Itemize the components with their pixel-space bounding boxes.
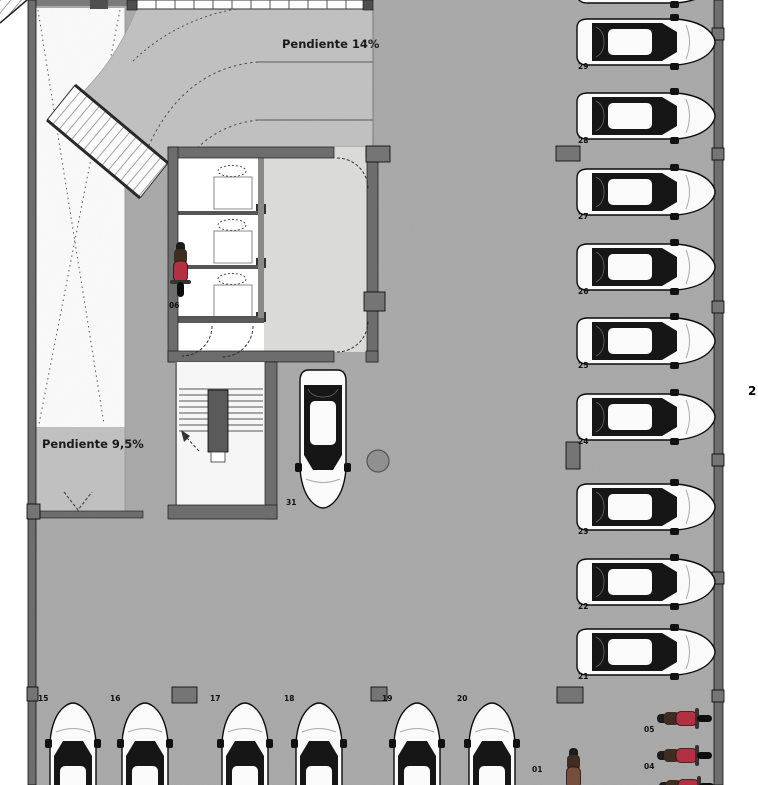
structural-column bbox=[557, 687, 583, 703]
parking-space-label: 18 bbox=[284, 694, 294, 703]
straight-ramp-label: Pendiente 9,5% bbox=[42, 437, 144, 451]
car bbox=[577, 389, 715, 445]
wall-left bbox=[28, 0, 36, 785]
parking-floor-plan: 2928272625242322211516171819203106050401… bbox=[0, 0, 758, 785]
structural-column bbox=[27, 504, 40, 519]
elevator-cab bbox=[214, 177, 252, 209]
cell-separator bbox=[178, 211, 264, 215]
parking-space-label: 16 bbox=[110, 694, 120, 703]
parking-space-label: 24 bbox=[578, 437, 588, 446]
elevator-front-wall bbox=[258, 158, 264, 320]
core-wall-bottom bbox=[168, 351, 334, 362]
car bbox=[577, 239, 715, 295]
parking-space-label: 29 bbox=[578, 62, 588, 71]
parking-space-label: 22 bbox=[578, 602, 588, 611]
structural-column bbox=[366, 146, 390, 162]
parking-space-label: 06 bbox=[169, 301, 179, 310]
parking-space-label: 31 bbox=[286, 498, 296, 507]
car bbox=[295, 370, 351, 508]
parking-space-label: 05 bbox=[644, 725, 654, 734]
elevator-cab bbox=[214, 231, 252, 263]
parking-space-label: 26 bbox=[578, 287, 588, 296]
elevator-cab bbox=[214, 285, 252, 317]
cell-separator bbox=[178, 265, 264, 269]
parking-space-label: 01 bbox=[532, 765, 542, 774]
structural-column bbox=[556, 146, 580, 161]
core-block bbox=[168, 147, 385, 362]
corner-hatch bbox=[0, 0, 27, 23]
stair-wall-right bbox=[265, 362, 277, 519]
curved-ramp-label: Pendiente 14% bbox=[282, 37, 380, 51]
structural-column bbox=[712, 148, 724, 160]
parking-space-label: 20 bbox=[457, 694, 467, 703]
stair-block bbox=[168, 362, 277, 519]
margin-note: 2 bbox=[748, 384, 756, 398]
parking-space-label: 21 bbox=[578, 672, 588, 681]
structural-column bbox=[27, 687, 38, 701]
core-wall-top bbox=[168, 147, 334, 158]
parking-space-label: 17 bbox=[210, 694, 220, 703]
parking-space-label: 25 bbox=[578, 361, 588, 370]
stair-wall-bottom bbox=[168, 505, 277, 519]
structural-column bbox=[172, 687, 197, 703]
round-column bbox=[367, 450, 389, 472]
core-wall-bottom-stub bbox=[366, 351, 378, 362]
wall-column bbox=[90, 0, 108, 9]
core-wall-right bbox=[367, 147, 378, 362]
car bbox=[577, 624, 715, 680]
wall-column bbox=[127, 0, 137, 10]
parking-space-label: 15 bbox=[38, 694, 48, 703]
car bbox=[577, 164, 715, 220]
structural-column bbox=[712, 301, 724, 313]
car bbox=[577, 88, 715, 144]
top-wall-segment bbox=[36, 0, 128, 6]
stair-newel bbox=[211, 452, 225, 462]
car bbox=[577, 554, 715, 610]
stair-divider bbox=[208, 390, 228, 452]
parking-space-label: 27 bbox=[578, 212, 588, 221]
floor-plan-drawing: 2928272625242322211516171819203106050401… bbox=[0, 0, 758, 785]
core-column bbox=[364, 292, 385, 311]
car bbox=[577, 313, 715, 369]
structural-column bbox=[712, 690, 724, 702]
lobby-floor bbox=[264, 147, 367, 352]
car bbox=[577, 479, 715, 535]
parking-space-label: 19 bbox=[382, 694, 392, 703]
structural-column bbox=[712, 454, 724, 466]
parking-space-label: 04 bbox=[644, 762, 654, 771]
wall-column bbox=[363, 0, 373, 10]
vestibule-wall bbox=[178, 318, 264, 323]
parking-space-label: 23 bbox=[578, 527, 588, 536]
parking-space-label: 28 bbox=[578, 136, 588, 145]
car bbox=[577, 14, 715, 70]
structural-column bbox=[566, 442, 580, 469]
